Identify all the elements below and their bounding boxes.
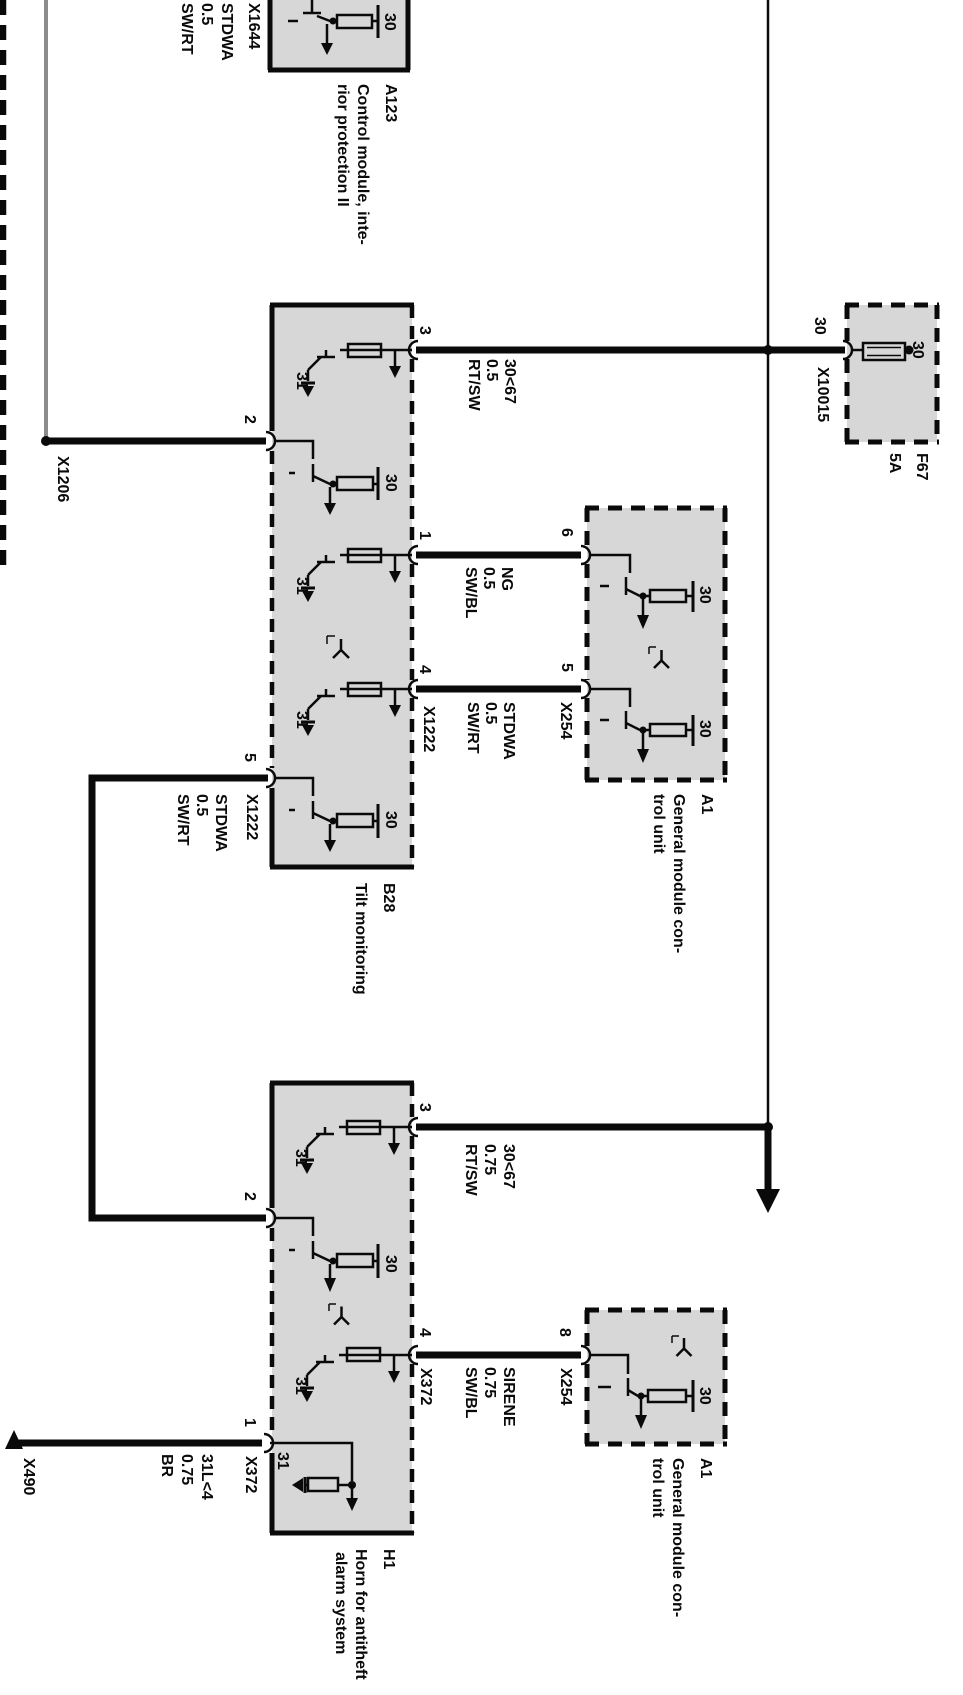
b28-wire4-signal: STDWA (500, 702, 517, 760)
b28-wire4-color: SW/RT (464, 702, 481, 754)
h1-wire1-signal: 31L<4 (198, 1454, 215, 1500)
h1-t31-1: 31 (292, 1149, 309, 1167)
a1a-pin6-number: 6 (558, 528, 575, 537)
module-a123-body (270, 0, 408, 70)
a1a-t30-2: 30 (696, 720, 713, 738)
f67-terminal-30-inner: 30 (909, 341, 926, 359)
h1-t30-1: 30 (382, 1255, 399, 1273)
a1a-desc-line1: General module con- (670, 794, 687, 953)
a123-connector-label: X1644 (245, 3, 262, 49)
a1b-desc-line1: General module con- (669, 1458, 686, 1617)
b28-wire3-color: RT/SW (465, 359, 482, 411)
b28-wire5-gauge: 0.5 (193, 794, 210, 816)
f67-id: F67 (913, 453, 930, 481)
h1-desc-line2: alarm system (332, 1552, 349, 1654)
a1b-pin8-number: 8 (556, 1328, 573, 1337)
b28-wire5-color: SW/RT (174, 794, 191, 846)
b28-wire4-gauge: 0.5 (482, 702, 499, 724)
a123-desc-line2: rior protection II (334, 84, 351, 207)
a123-desc-line1: Control module, inte- (354, 84, 371, 245)
h1-wire4-gauge: 0.75 (481, 1367, 498, 1398)
h1-id: H1 (380, 1549, 397, 1570)
a123-id: A123 (382, 84, 399, 122)
b28-pin2-number: 2 (241, 415, 258, 424)
h1-pin2-number: 2 (241, 1192, 258, 1201)
b28-pin4-number: 4 (416, 665, 433, 674)
b28-id: B28 (380, 883, 397, 912)
h1-wire4-color: SW/BL (462, 1367, 479, 1419)
b28-t30-1: 30 (382, 474, 399, 492)
module-b28-body (272, 305, 412, 867)
a1a-id: A1 (698, 794, 715, 815)
h1-wire1-gauge: 0.75 (178, 1454, 195, 1485)
h1-t31-2: 31 (292, 1377, 309, 1395)
h1-wire3-color: RT/SW (462, 1144, 479, 1196)
a123-wire-gauge: 0.5 (198, 3, 215, 25)
h1-x372-pin4: X372 (417, 1368, 434, 1405)
module-a1a-body (587, 508, 725, 780)
bus-continuation-arrow (756, 1127, 780, 1213)
h1-pin3-number: 3 (416, 1103, 433, 1112)
b28-x1222-pin5: X1222 (243, 794, 260, 840)
h1-desc-line1: Horn for antitheft (352, 1549, 369, 1680)
h1-t31-3: 31 (274, 1452, 291, 1470)
b28-wire3-gauge: 0.5 (483, 359, 500, 381)
a1a-connector-label: X254 (557, 702, 574, 739)
b28-pin3-number: 3 (416, 326, 433, 335)
x490-label: X490 (20, 1458, 37, 1495)
b28-wire1-color: SW/BL (462, 567, 479, 619)
x1206-label: X1206 (54, 456, 71, 502)
b28-t31-2: 31 (293, 577, 310, 595)
b28-wire5-signal: STDWA (212, 794, 229, 852)
a1a-desc-line2: trol unit (650, 794, 667, 854)
h1-wire3-signal: 30<67 (500, 1144, 517, 1189)
junction-dot-30-top (763, 345, 773, 355)
b28-desc: Tilt monitoring (352, 883, 369, 995)
a123-terminal-30: 30 (381, 13, 398, 31)
a1a-pin5-number: 5 (558, 663, 575, 672)
b28-wire1-signal: NG (498, 567, 515, 591)
h1-pin1-number: 1 (241, 1418, 258, 1427)
a1a-t30-1: 30 (696, 586, 713, 604)
h1-x372-pin1: X372 (242, 1456, 259, 1493)
b28-t31-3: 31 (293, 711, 310, 729)
b28-t30-2: 30 (382, 811, 399, 829)
a1b-t30: 30 (696, 1387, 713, 1405)
b28-wire1-gauge: 0.5 (480, 567, 497, 589)
h1-wire1-color: BR (158, 1454, 175, 1478)
a1b-connector-label: X254 (557, 1368, 574, 1405)
wiring-diagram: 30 X1644 STDWA 0.5 SW/RT A123 Control mo… (0, 0, 963, 1695)
f67-connector-label: X10015 (814, 367, 831, 422)
b28-pin5-number: 5 (241, 753, 258, 762)
b28-pin1-number: 1 (416, 531, 433, 540)
a1b-desc-line2: trol unit (649, 1458, 666, 1518)
h1-wire4-signal: SIRENE (500, 1367, 517, 1427)
module-a1b-body (587, 1310, 725, 1444)
b28-t31-1: 31 (293, 372, 310, 390)
schematic-page: 30 X1644 STDWA 0.5 SW/RT A123 Control mo… (0, 0, 963, 1695)
b28-wire3-signal: 30<67 (501, 359, 518, 404)
h1-wire3-gauge: 0.75 (481, 1144, 498, 1175)
f67-terminal-30-outer: 30 (811, 317, 828, 335)
f67-rating: 5A (886, 453, 903, 474)
h1-pin4-number: 4 (416, 1328, 433, 1337)
a1b-id: A1 (697, 1458, 714, 1479)
a123-wire-signal: STDWA (218, 3, 235, 61)
a123-wire-color: SW/RT (178, 3, 195, 55)
module-f67-body (847, 305, 937, 442)
b28-x1222-pin4: X1222 (420, 706, 437, 752)
